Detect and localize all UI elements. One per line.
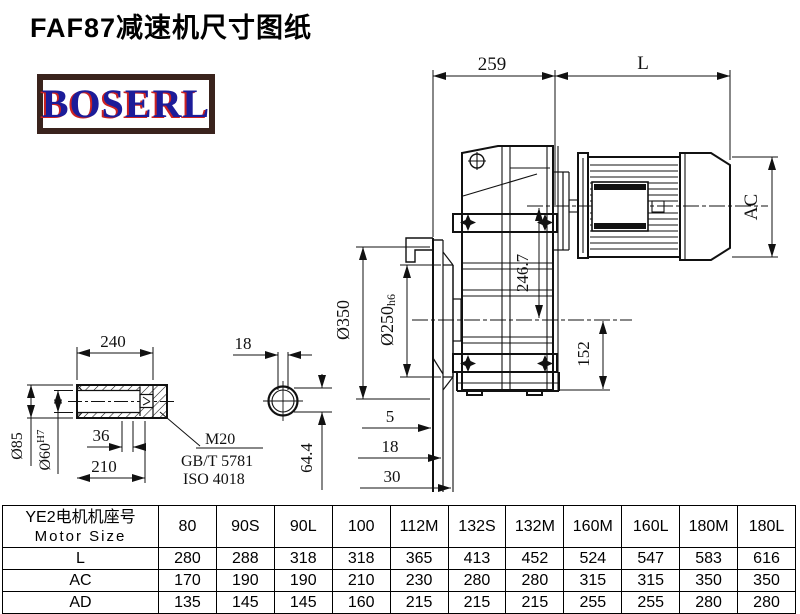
thread-standard-iso: ISO 4018 bbox=[183, 471, 245, 488]
motor-size-column-header: 100 bbox=[332, 506, 390, 548]
dim-key-width: 18 bbox=[235, 334, 252, 353]
fan-cover bbox=[680, 153, 730, 260]
motor-size-column-header: 132S bbox=[448, 506, 506, 548]
table-cell: 280 bbox=[680, 592, 738, 614]
dim-housing-width: 259 bbox=[478, 54, 507, 75]
table-cell: 255 bbox=[622, 592, 680, 614]
row-label: L bbox=[3, 548, 159, 570]
motor-size-column-header: 112M bbox=[390, 506, 448, 548]
motor-size-header-cell: YE2电机机座号 Motor Size bbox=[3, 506, 159, 548]
row-label: AD bbox=[3, 592, 159, 614]
dim-lower-height: 152 bbox=[574, 341, 593, 367]
row-label: AC bbox=[3, 570, 159, 592]
motor-size-column-header: 90S bbox=[216, 506, 274, 548]
table-cell: 413 bbox=[448, 548, 506, 570]
table-cell: 315 bbox=[622, 570, 680, 592]
motor bbox=[553, 153, 730, 260]
table-cell: 190 bbox=[274, 570, 332, 592]
bolt-target-icon bbox=[468, 152, 486, 170]
dim-flange-offset-2: 18 bbox=[382, 437, 399, 456]
motor-size-column-header: 160M bbox=[564, 506, 622, 548]
dim-shaft-length-lines bbox=[77, 347, 153, 380]
dim-axis-distance: 246.7 bbox=[513, 253, 532, 292]
table-cell: 288 bbox=[216, 548, 274, 570]
dim-key-width-lines bbox=[233, 352, 312, 390]
shaft-detail-view: 240 Ø85 Ø60H7 bbox=[9, 332, 263, 488]
table-cell: 145 bbox=[216, 592, 274, 614]
table-body: L280288318318365413452524547583616AC1701… bbox=[3, 548, 796, 614]
table-cell: 616 bbox=[738, 548, 796, 570]
table-cell: 318 bbox=[274, 548, 332, 570]
table-cell: 452 bbox=[506, 548, 564, 570]
thread-standard-gb: GB/T 5781 bbox=[181, 453, 253, 470]
table-cell: 315 bbox=[564, 570, 622, 592]
table-cell: 215 bbox=[448, 592, 506, 614]
table-cell: 350 bbox=[738, 570, 796, 592]
table-cell: 170 bbox=[159, 570, 217, 592]
table-row: AD135145145160215215215255255280280 bbox=[3, 592, 796, 614]
motor-size-column-header: 180L bbox=[738, 506, 796, 548]
table-header-row: YE2电机机座号 Motor Size 8090S90L100112M132S1… bbox=[3, 506, 796, 548]
dim-flange-od: Ø350 bbox=[333, 300, 353, 340]
dim-shaft-length: 240 bbox=[100, 332, 126, 351]
motor-size-column-header: 132M bbox=[506, 506, 564, 548]
dim-motor-length: L bbox=[637, 53, 649, 74]
table-row: AC170190190210230280280315315350350 bbox=[3, 570, 796, 592]
motor-size-table: YE2电机机座号 Motor Size 8090S90L100112M132S1… bbox=[2, 505, 796, 614]
motor-size-column-header: 160L bbox=[622, 506, 680, 548]
table-cell: 280 bbox=[738, 592, 796, 614]
table-cell: 365 bbox=[390, 548, 448, 570]
motor-size-column-header: 90L bbox=[274, 506, 332, 548]
table-cell: 135 bbox=[159, 592, 217, 614]
motor-size-header-en: Motor Size bbox=[3, 528, 158, 546]
dim-shaft-od: Ø85 bbox=[9, 432, 26, 460]
table-cell: 583 bbox=[680, 548, 738, 570]
dim-flange-offsets-lines bbox=[358, 392, 453, 492]
drawing-page: FAF87减速机尺寸图纸 BOSERL bbox=[0, 0, 800, 614]
table-cell: 350 bbox=[680, 570, 738, 592]
table-cell: 160 bbox=[332, 592, 390, 614]
table-cell: 280 bbox=[448, 570, 506, 592]
motor-size-column-header: 80 bbox=[159, 506, 217, 548]
table-cell: 255 bbox=[564, 592, 622, 614]
dim-hub-length: 210 bbox=[91, 457, 117, 476]
dim-bore-lines bbox=[54, 391, 73, 475]
dim-pilot: Ø250h6 bbox=[377, 294, 398, 346]
dim-key-height: 64.4 bbox=[297, 443, 316, 473]
dim-flange-offset-1: 5 bbox=[386, 407, 395, 426]
table-cell: 215 bbox=[506, 592, 564, 614]
table-cell: 280 bbox=[506, 570, 564, 592]
dim-bore: Ø60H7 bbox=[35, 429, 54, 471]
thread-label: M20 bbox=[205, 431, 235, 448]
table-cell: 524 bbox=[564, 548, 622, 570]
main-view: 259 L AC Ø350 Ø250h6 bbox=[333, 53, 778, 492]
dim-bore-step: 36 bbox=[93, 426, 110, 445]
table-cell: 210 bbox=[332, 570, 390, 592]
table-row: L280288318318365413452524547583616 bbox=[3, 548, 796, 570]
dim-motor-diameter: AC bbox=[741, 194, 762, 220]
table-cell: 190 bbox=[216, 570, 274, 592]
table-cell: 547 bbox=[622, 548, 680, 570]
motor-size-header-cn: YE2电机机座号 bbox=[3, 508, 158, 528]
table-cell: 215 bbox=[390, 592, 448, 614]
motor-size-column-header: 180M bbox=[680, 506, 738, 548]
table-cell: 230 bbox=[390, 570, 448, 592]
table-cell: 280 bbox=[159, 548, 217, 570]
dim-flange-offset-3: 30 bbox=[384, 467, 401, 486]
table-cell: 145 bbox=[274, 592, 332, 614]
table-cell: 318 bbox=[332, 548, 390, 570]
